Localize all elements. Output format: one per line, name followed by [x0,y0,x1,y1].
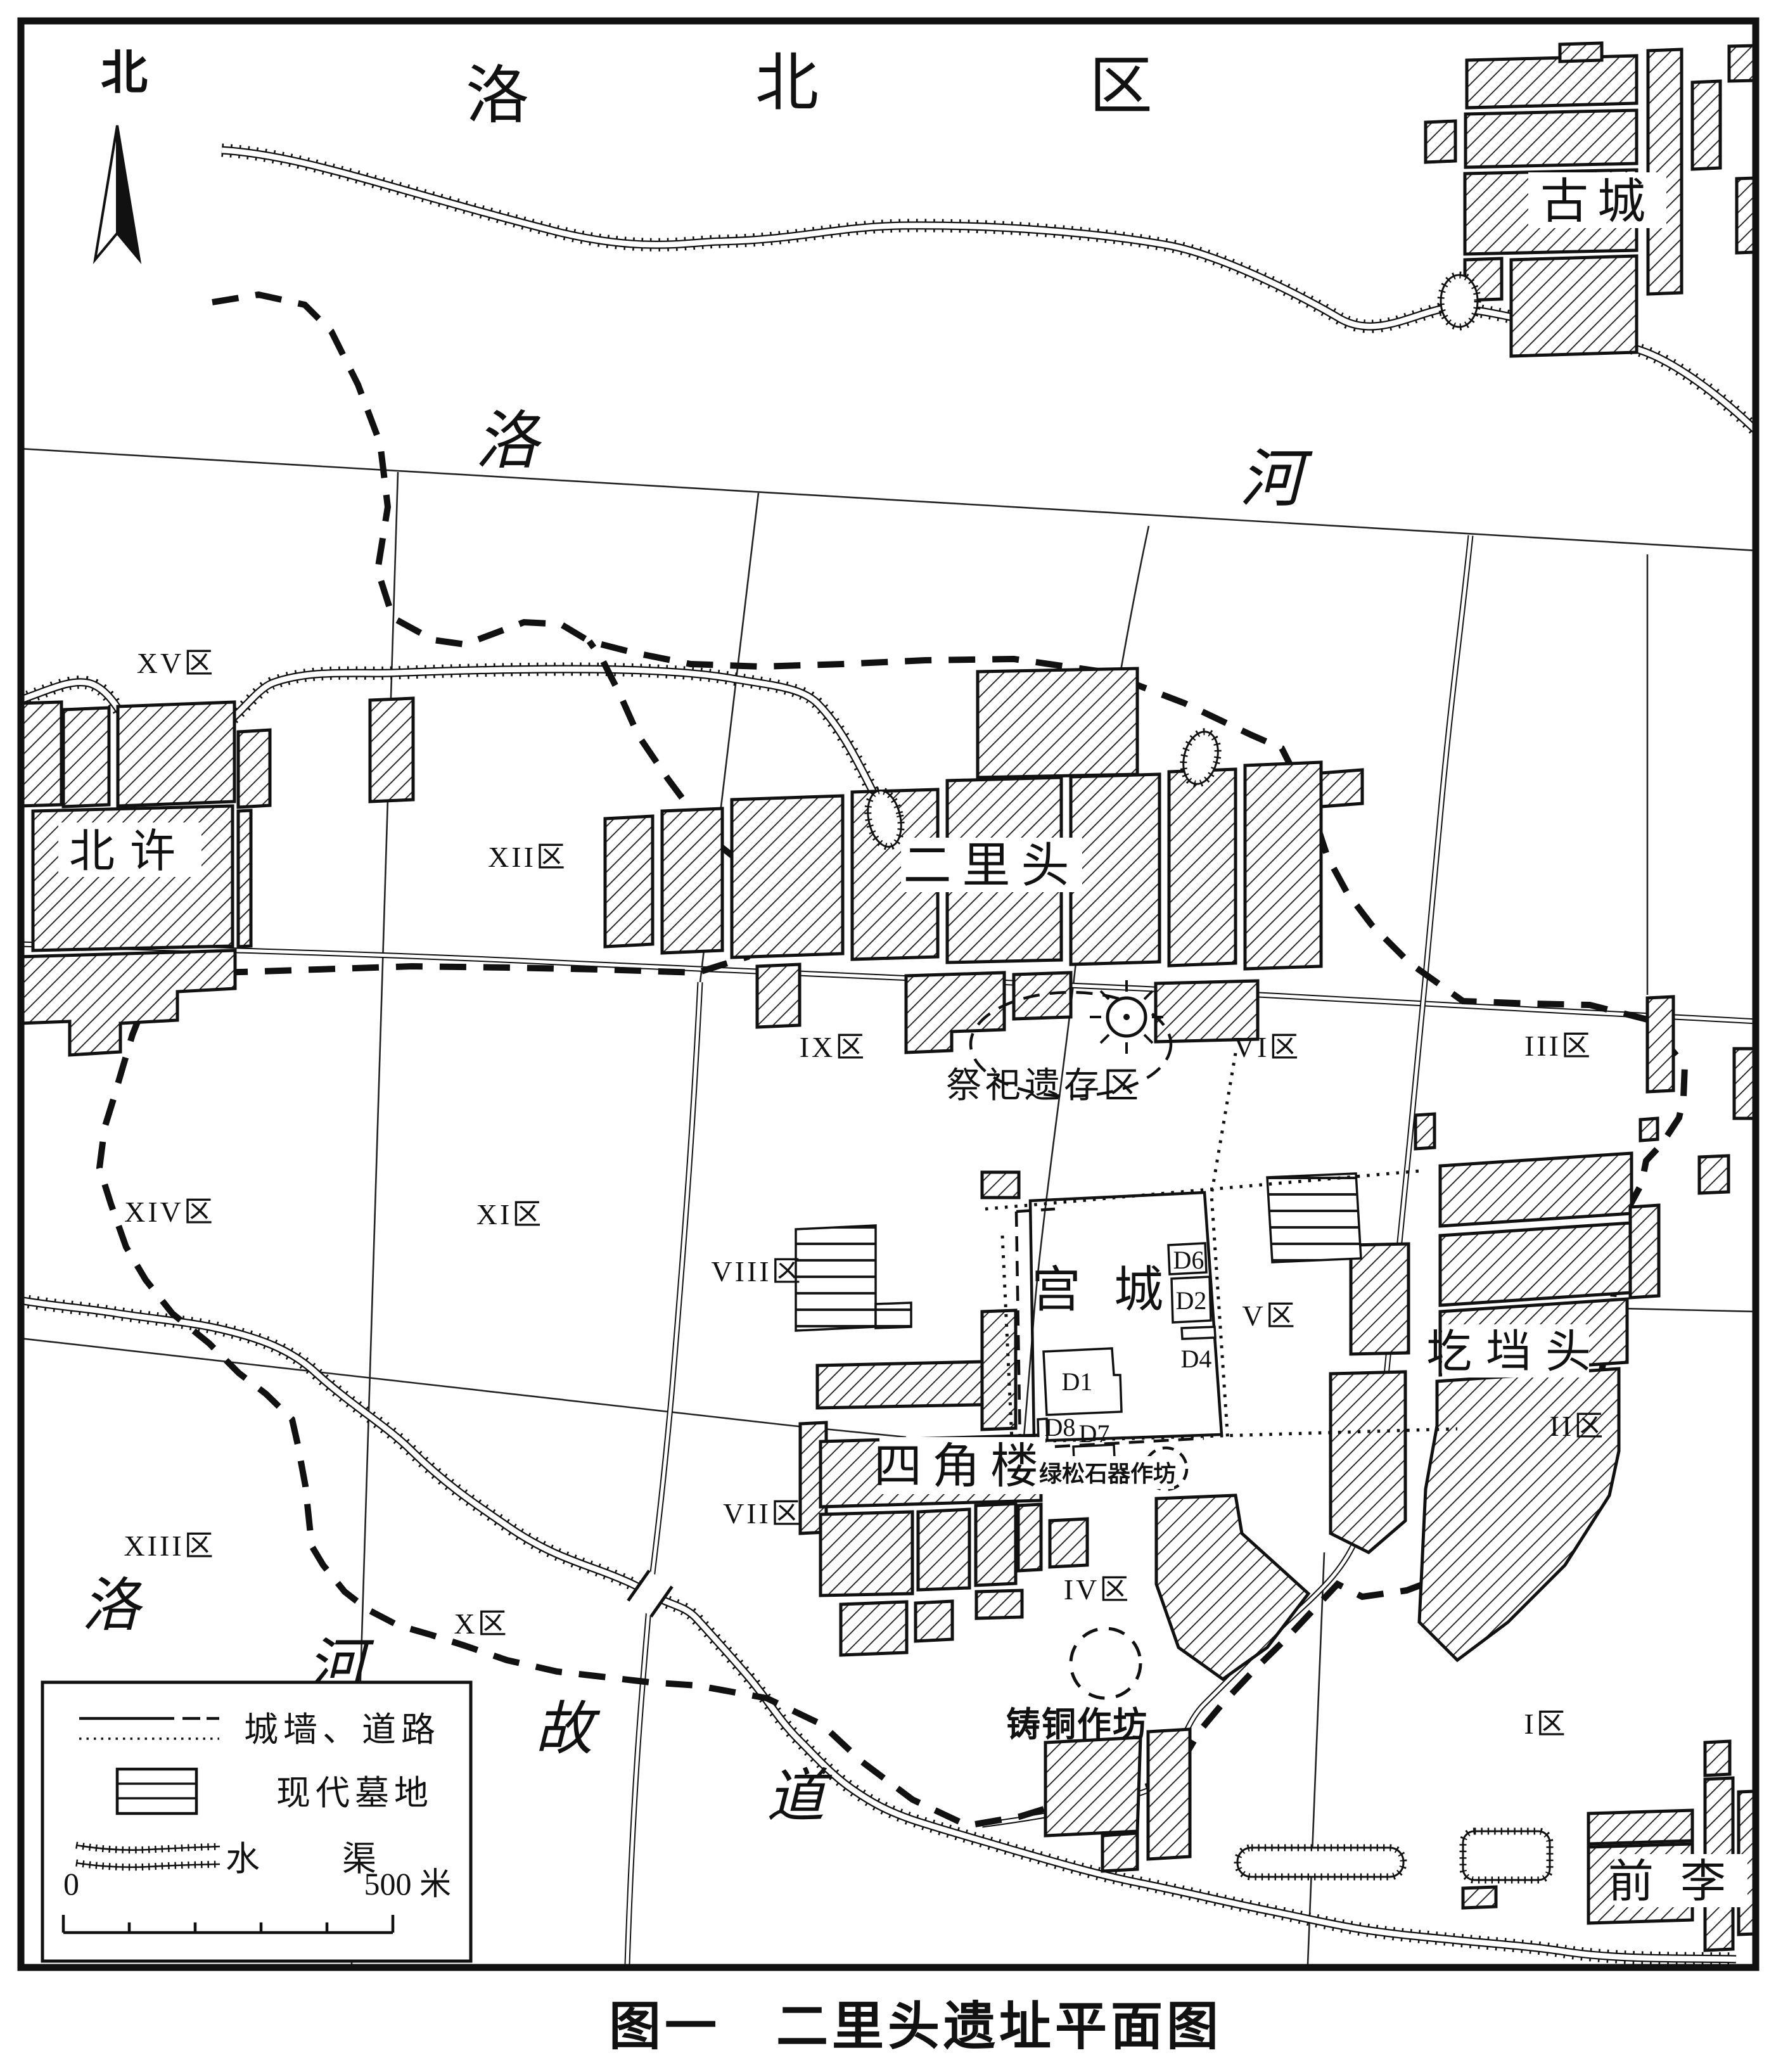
scale-zero: 0 [63,1866,79,1902]
sacrificial-area-label: 祭祀遗存区 [946,1066,1142,1106]
village-label-gucheng: 古城 [1528,172,1666,229]
zone-label-i: I区 [1524,1708,1568,1740]
zone-label-iii: III区 [1524,1030,1593,1062]
zone-label-iv: IV区 [1064,1573,1132,1606]
pond [1237,1848,1403,1877]
svg-text:古城: 古城 [1540,176,1654,229]
turquoise-workshop-label: 绿松石器作坊 [1039,1456,1176,1489]
zone-label-v: V区 [1242,1300,1297,1332]
building-label-d6: D6 [1173,1246,1204,1274]
zone-label-x: X区 [454,1608,509,1640]
legend-label-wall-road: 城墙、道路 [244,1711,440,1749]
old-course-char: 洛 [82,1573,143,1638]
sacrificial-mound-icon [1090,980,1163,1054]
north-label: 北 [101,48,148,99]
luo-river-char: 河 [1239,444,1313,515]
building-d4 [1182,1327,1215,1339]
luo-river-char: 洛 [475,406,542,476]
palace-road-east [1211,1053,1236,1442]
zone-label-ix: IX区 [800,1031,867,1063]
zone-label-viii: VIII区 [711,1255,803,1288]
field-line [20,1338,906,1437]
zone-label-xiii: XIII区 [124,1530,215,1562]
svg-text:二里头: 二里头 [904,840,1080,893]
building-label-d2: D2 [1176,1286,1207,1315]
bridge [628,1571,672,1617]
zone-label-xiv: XIV区 [124,1196,215,1228]
building-label-d8: D8 [1045,1413,1076,1442]
north-arrow [95,125,139,260]
erlitou-site-map: 洛 北 区 洛 河 洛 河 故 道 古城 北许 二里头 圪垱头 四角楼 [0,0,1776,2072]
district-banner-char: 区 [1089,51,1153,122]
village-label-beixu: 北许 [58,822,201,877]
svg-text:前李: 前李 [1608,1857,1753,1907]
district-banner-char: 北 [755,48,819,118]
zone-label-vii: VII区 [723,1497,803,1530]
figure-title: 图一 二里头遗址平面图 [609,1998,1222,2056]
village-label-gedangtou: 圪垱头 [1426,1324,1605,1378]
building-label-d1: D1 [1062,1367,1093,1396]
svg-text:北许: 北许 [69,826,191,877]
zone-label-xi: XI区 [476,1198,544,1231]
village-label-qianli: 前李 [1608,1854,1753,1907]
legend-label-cemetery: 现代墓地 [276,1774,433,1812]
legend: 城墙、道路 现代墓地 水渠 0 500 米 [42,1682,471,1961]
palace-city-label: 宫城 [1032,1262,1196,1317]
legend-symbol-cemetery [117,1769,196,1813]
bronze-workshop-label: 铸铜作坊 [1006,1706,1148,1744]
pond [1463,1831,1550,1880]
zone-label-ii: II区 [1550,1410,1606,1442]
village-label-erlitou: 二里头 [901,838,1082,893]
bronze-workshop-circle [1071,1628,1140,1698]
scale-end: 500 米 [364,1866,452,1902]
zone-label-xii: XII区 [488,841,568,873]
field-line [20,449,1758,551]
village-label-sijiaolou: 四角楼 [874,1437,1049,1494]
zone-label-xv: XV区 [137,647,215,679]
svg-text:圪垱头: 圪垱头 [1426,1327,1605,1378]
svg-text:四角楼: 四角楼 [874,1440,1049,1493]
zone-label-vi: VI区 [1234,1031,1301,1063]
pond [1441,275,1478,327]
building-label-d4: D4 [1181,1345,1212,1373]
building-label-d7: D7 [1079,1419,1110,1448]
svg-text:绿松石器作坊: 绿松石器作坊 [1039,1461,1176,1487]
field-line [1622,1308,1758,1312]
road-north-south-center [627,982,700,1964]
old-course-char: 道 [767,1764,833,1829]
district-banner-char: 洛 [466,61,529,131]
old-course-char: 故 [535,1697,601,1762]
